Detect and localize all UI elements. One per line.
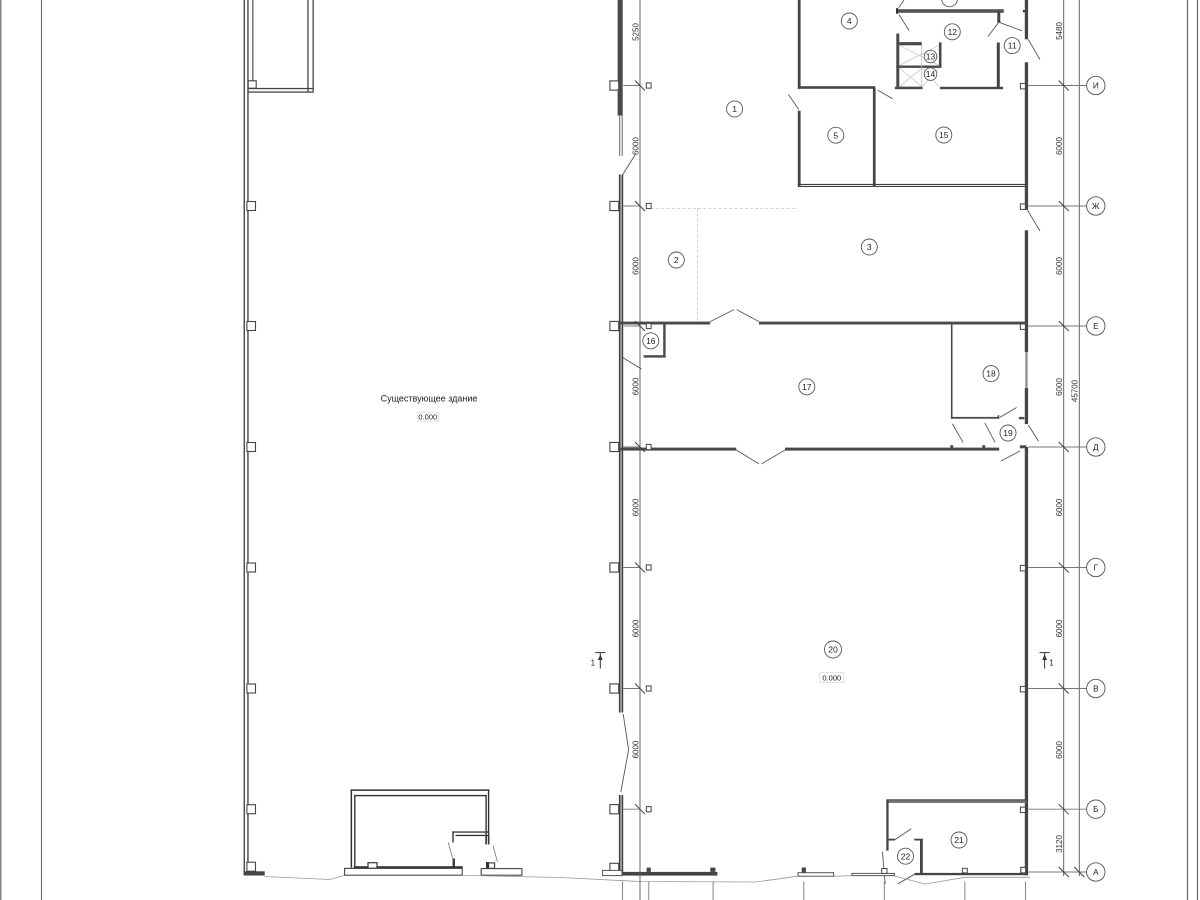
svg-text:6000: 6000 bbox=[632, 377, 641, 395]
svg-text:6000: 6000 bbox=[632, 619, 641, 637]
svg-text:5250: 5250 bbox=[632, 23, 641, 41]
svg-text:6000: 6000 bbox=[632, 257, 641, 275]
svg-text:14: 14 bbox=[926, 69, 936, 79]
svg-text:17: 17 bbox=[802, 382, 812, 392]
svg-text:12: 12 bbox=[948, 27, 958, 37]
svg-text:В: В bbox=[1093, 685, 1099, 694]
svg-text:45700: 45700 bbox=[1071, 379, 1080, 402]
svg-text:Б: Б bbox=[1093, 805, 1098, 814]
svg-text:6000: 6000 bbox=[1055, 498, 1064, 516]
svg-text:6000: 6000 bbox=[1055, 257, 1064, 275]
svg-text:1: 1 bbox=[591, 658, 596, 667]
svg-text:Д: Д bbox=[1093, 443, 1099, 452]
svg-text:И: И bbox=[1093, 82, 1099, 91]
svg-text:1: 1 bbox=[1049, 658, 1054, 667]
svg-text:0.000: 0.000 bbox=[822, 673, 841, 682]
svg-text:20: 20 bbox=[828, 645, 838, 655]
svg-text:3120: 3120 bbox=[1055, 835, 1064, 853]
svg-text:22: 22 bbox=[901, 851, 911, 861]
svg-text:А: А bbox=[1093, 868, 1099, 877]
svg-text:5480: 5480 bbox=[1055, 22, 1064, 40]
svg-text:21: 21 bbox=[954, 835, 964, 845]
svg-text:4: 4 bbox=[847, 16, 852, 26]
svg-text:19: 19 bbox=[1003, 428, 1013, 438]
svg-text:2: 2 bbox=[674, 255, 679, 265]
svg-text:6000: 6000 bbox=[632, 498, 641, 516]
svg-text:Ж: Ж bbox=[1092, 202, 1100, 211]
svg-text:5: 5 bbox=[833, 130, 838, 140]
svg-text:Г: Г bbox=[1094, 564, 1099, 573]
svg-text:Е: Е bbox=[1093, 322, 1099, 331]
svg-text:11: 11 bbox=[1008, 41, 1017, 51]
svg-text:0.000: 0.000 bbox=[418, 412, 437, 421]
svg-text:13: 13 bbox=[926, 52, 936, 62]
svg-text:6000: 6000 bbox=[632, 137, 641, 155]
svg-text:16: 16 bbox=[646, 336, 656, 346]
svg-text:3: 3 bbox=[867, 242, 872, 252]
svg-text:6000: 6000 bbox=[1055, 137, 1064, 155]
svg-text:Существующее здание: Существующее здание bbox=[381, 394, 478, 404]
svg-text:6000: 6000 bbox=[1055, 619, 1064, 637]
svg-text:6000: 6000 bbox=[632, 740, 641, 758]
svg-text:6000: 6000 bbox=[1055, 378, 1064, 396]
svg-text:18: 18 bbox=[986, 369, 996, 379]
svg-text:15: 15 bbox=[939, 130, 949, 140]
svg-text:6000: 6000 bbox=[1055, 741, 1064, 759]
svg-text:1: 1 bbox=[732, 104, 737, 114]
